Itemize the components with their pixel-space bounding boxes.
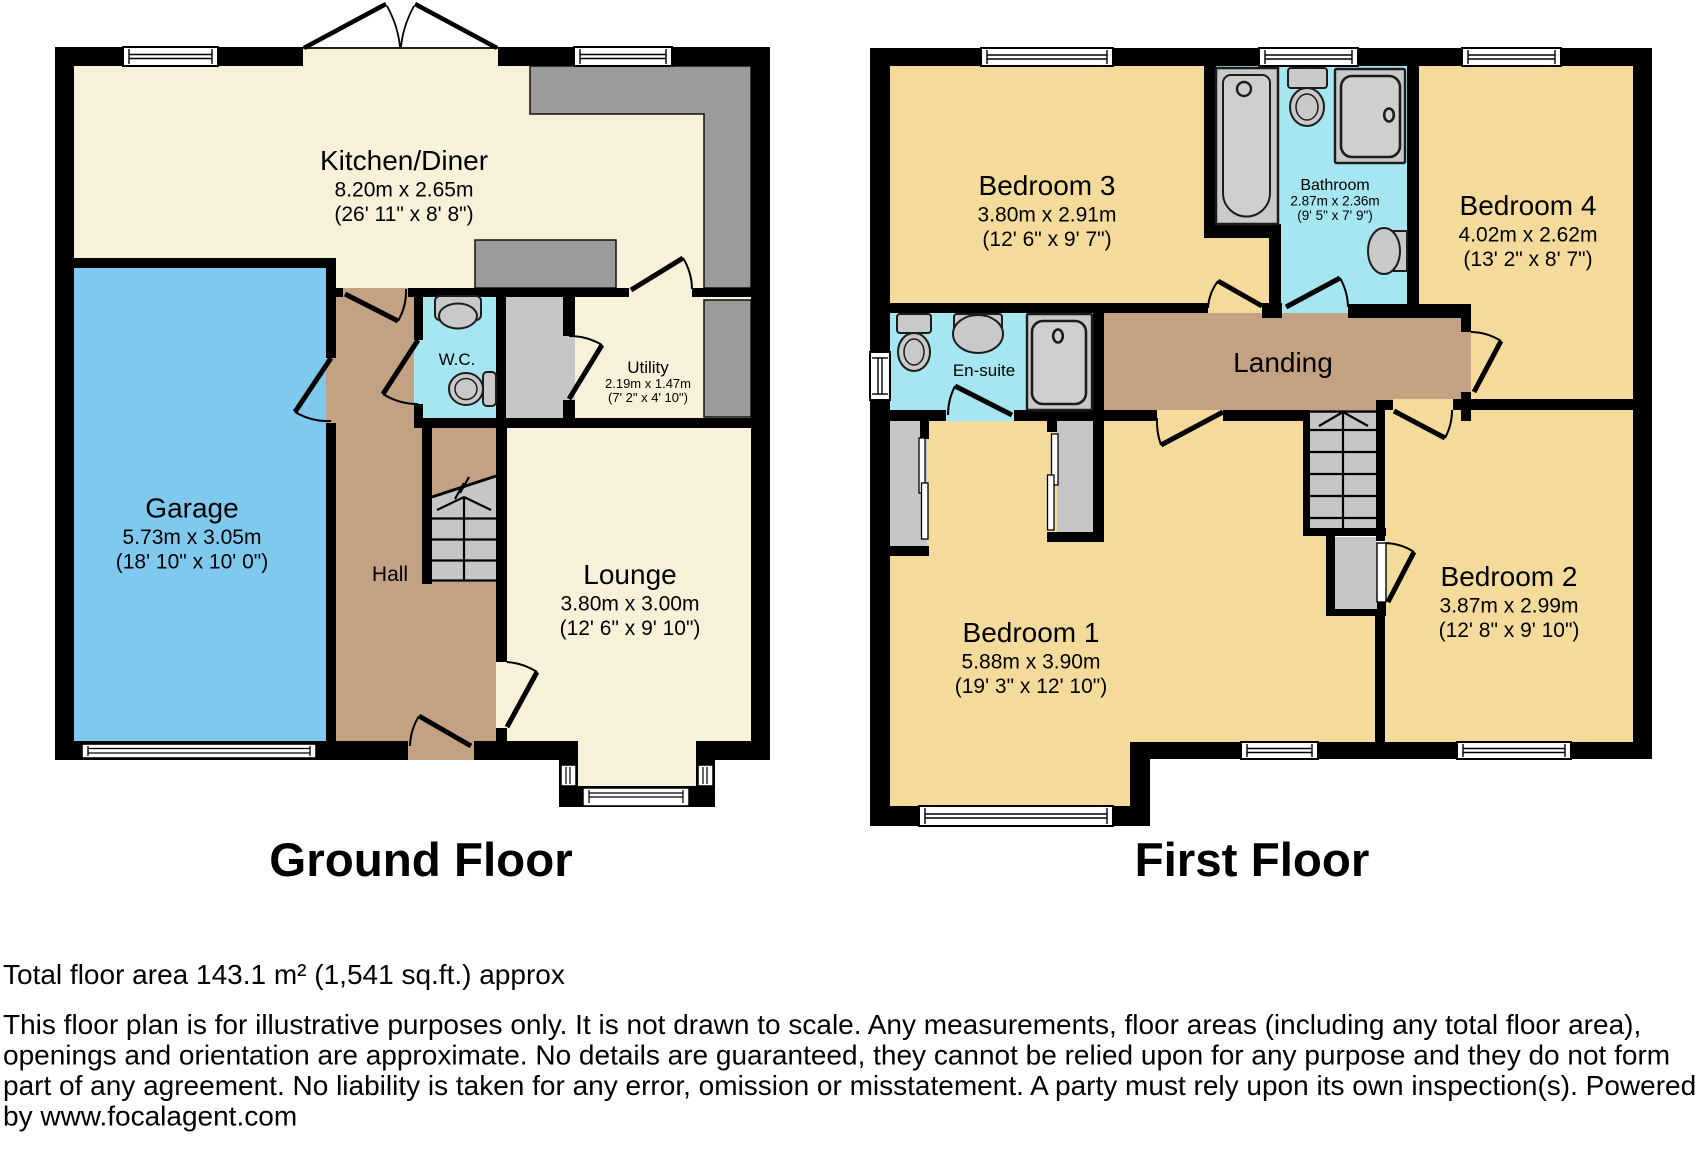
svg-text:Bedroom 2: Bedroom 2 [1441,561,1578,592]
svg-text:4.02m x 2.62m: 4.02m x 2.62m [1459,224,1598,247]
svg-text:Kitchen/Diner: Kitchen/Diner [320,145,488,176]
svg-text:Total floor area 143.1 m² (1,5: Total floor area 143.1 m² (1,541 sq.ft.)… [3,959,565,990]
svg-text:Utility: Utility [627,358,669,377]
svg-text:3.80m x 3.00m: 3.80m x 3.00m [561,593,700,616]
svg-text:(13' 2" x 8' 7"): (13' 2" x 8' 7") [1463,248,1592,271]
svg-text:Ground Floor: Ground Floor [269,834,572,887]
svg-text:3.80m x 2.91m: 3.80m x 2.91m [978,204,1117,227]
svg-text:5.88m x 3.90m: 5.88m x 3.90m [962,651,1101,674]
svg-text:Bathroom: Bathroom [1300,177,1369,194]
svg-text:part of any agreement. No liab: part of any agreement. No liability is t… [3,1070,1696,1101]
svg-text:2.87m x 2.36m: 2.87m x 2.36m [1290,194,1379,209]
svg-text:(12' 6" x 9' 7"): (12' 6" x 9' 7") [982,228,1111,251]
svg-text:Bedroom 3: Bedroom 3 [979,170,1116,201]
svg-text:Garage: Garage [145,493,238,524]
svg-text:5.73m x 3.05m: 5.73m x 3.05m [123,526,262,549]
svg-text:by www.focalagent.com: by www.focalagent.com [3,1101,297,1132]
svg-text:3.87m x 2.99m: 3.87m x 2.99m [1440,595,1579,618]
svg-text:(26' 11" x 8' 8"): (26' 11" x 8' 8") [334,203,473,226]
svg-text:(7' 2" x 4' 10"): (7' 2" x 4' 10") [608,390,688,405]
svg-text:First Floor: First Floor [1135,834,1370,887]
svg-text:8.20m x 2.65m: 8.20m x 2.65m [335,179,474,202]
svg-text:(9' 5" x 7' 9"): (9' 5" x 7' 9") [1297,208,1373,223]
svg-text:2.19m x 1.47m: 2.19m x 1.47m [605,376,691,391]
svg-text:This floor plan is for illustr: This floor plan is for illustrative purp… [3,1009,1641,1040]
svg-text:(12' 6" x 9' 10"): (12' 6" x 9' 10") [560,617,701,640]
svg-text:Lounge: Lounge [583,559,676,590]
svg-text:(19' 3" x 12' 10"): (19' 3" x 12' 10") [955,675,1108,698]
svg-text:Hall: Hall [372,563,408,586]
svg-text:openings and orientation are a: openings and orientation are approximate… [3,1040,1670,1071]
svg-text:Landing: Landing [1233,347,1333,378]
svg-text:Bedroom 1: Bedroom 1 [963,617,1100,648]
svg-text:Bedroom 4: Bedroom 4 [1460,190,1597,221]
svg-text:(18' 10" x 10' 0"): (18' 10" x 10' 0") [116,551,269,574]
svg-text:En-suite: En-suite [953,361,1015,380]
svg-text:(12' 8" x 9' 10"): (12' 8" x 9' 10") [1439,619,1580,642]
svg-text:W.C.: W.C. [439,350,476,369]
